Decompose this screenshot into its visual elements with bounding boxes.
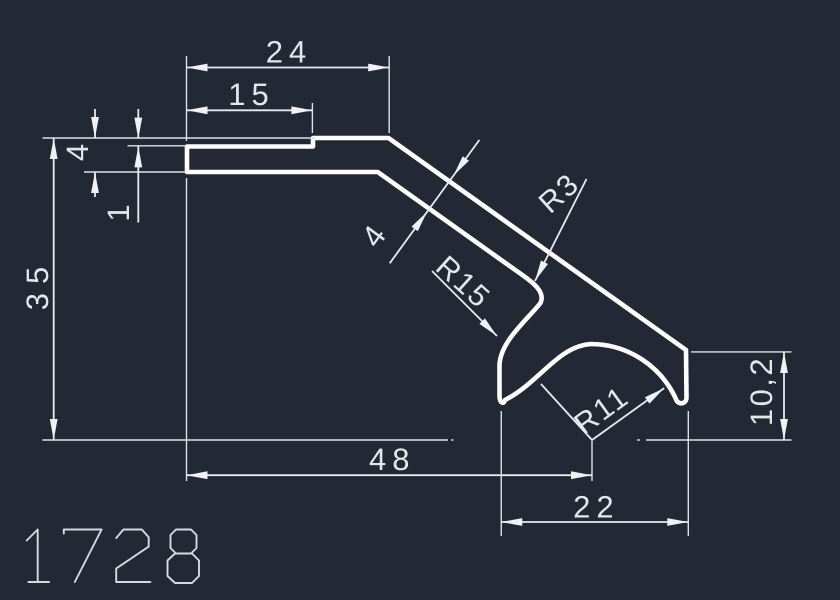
svg-text:4: 4 <box>60 138 95 161</box>
svg-text:15: 15 <box>228 77 274 112</box>
svg-text:48: 48 <box>369 442 415 477</box>
svg-text:10,2: 10,2 <box>744 356 779 426</box>
svg-text:1: 1 <box>101 198 136 221</box>
svg-text:22: 22 <box>573 490 619 525</box>
svg-text:24: 24 <box>266 35 312 70</box>
svg-text:35: 35 <box>20 258 55 310</box>
